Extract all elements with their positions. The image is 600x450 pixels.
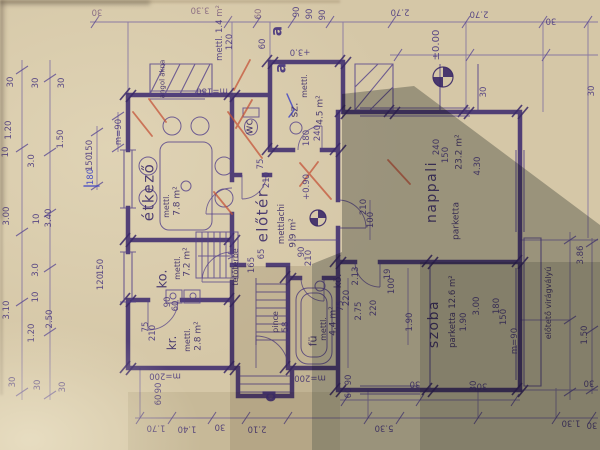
bath-basin xyxy=(315,281,325,291)
dining-table xyxy=(160,142,212,230)
washbasin xyxy=(290,122,302,134)
chair xyxy=(163,117,181,135)
floorplan-photo: étkező mettl. 7.8 m² wc sz. mettl. 4.5 m… xyxy=(0,0,600,450)
photo-edge-left xyxy=(0,0,5,220)
chair xyxy=(191,117,209,135)
photo-edge-top xyxy=(0,0,150,5)
wall-hatch-ticks xyxy=(120,55,528,397)
burner xyxy=(170,293,176,299)
blue-pen-marks xyxy=(84,94,294,186)
kitchen-unit xyxy=(166,290,182,303)
level-symbols xyxy=(310,67,453,226)
toilet xyxy=(245,119,258,135)
table-center xyxy=(181,181,191,191)
chair xyxy=(139,157,157,175)
chair xyxy=(139,189,157,207)
floorplan-drawing xyxy=(0,0,600,450)
furniture xyxy=(139,108,332,364)
dimension-ticks xyxy=(16,16,598,424)
bathtub-inner xyxy=(301,293,327,357)
